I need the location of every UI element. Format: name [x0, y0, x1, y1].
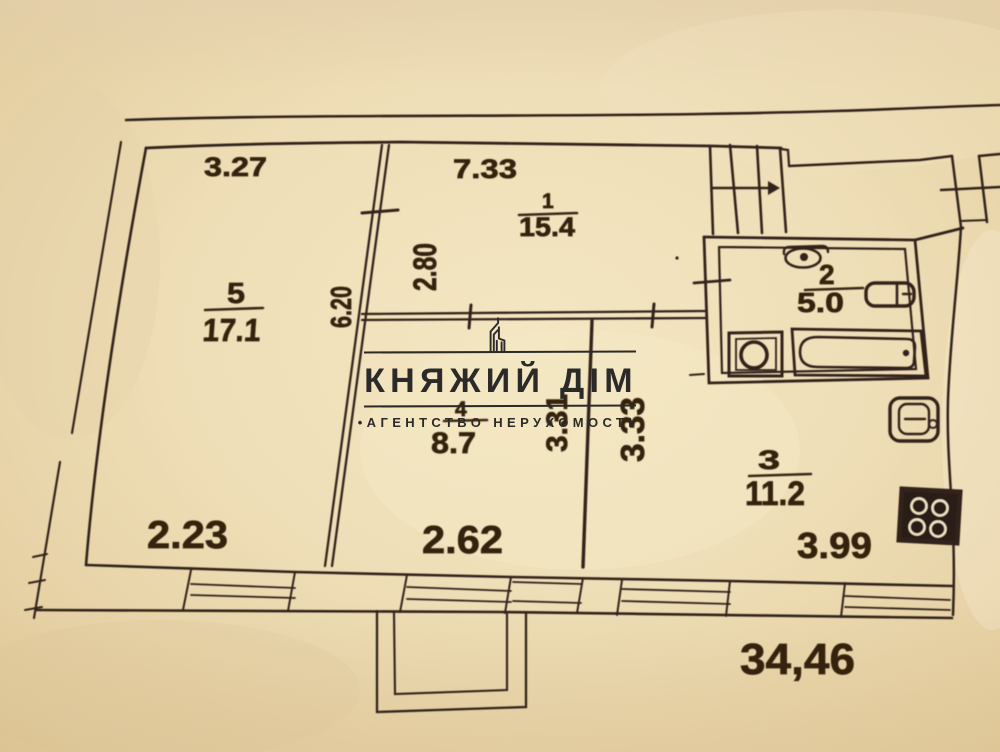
svg-text:3: 3: [758, 445, 780, 475]
svg-text:•АГЕНТСТВО НЕРУХОМОСТІ: •АГЕНТСТВО НЕРУХОМОСТІ: [358, 415, 637, 430]
svg-text:3.27: 3.27: [204, 152, 267, 182]
svg-text:1: 1: [542, 190, 554, 213]
svg-text:5.0: 5.0: [797, 287, 844, 318]
svg-text:11.2: 11.2: [745, 475, 805, 513]
svg-text:5: 5: [227, 278, 245, 310]
svg-text:3.99: 3.99: [797, 525, 872, 566]
svg-text:17.1: 17.1: [202, 312, 263, 348]
svg-text:15.4: 15.4: [519, 212, 575, 242]
svg-text:2.80: 2.80: [407, 243, 443, 291]
svg-text:8.7: 8.7: [431, 427, 476, 460]
svg-text:2.23: 2.23: [147, 514, 228, 557]
svg-text:7.33: 7.33: [453, 154, 517, 184]
svg-text:2.62: 2.62: [422, 519, 503, 562]
svg-text:6.20: 6.20: [326, 286, 358, 328]
svg-text:34,46: 34,46: [740, 635, 855, 684]
svg-text:2: 2: [819, 259, 835, 290]
svg-text:КНЯЖИЙ ДІМ: КНЯЖИЙ ДІМ: [364, 361, 638, 400]
